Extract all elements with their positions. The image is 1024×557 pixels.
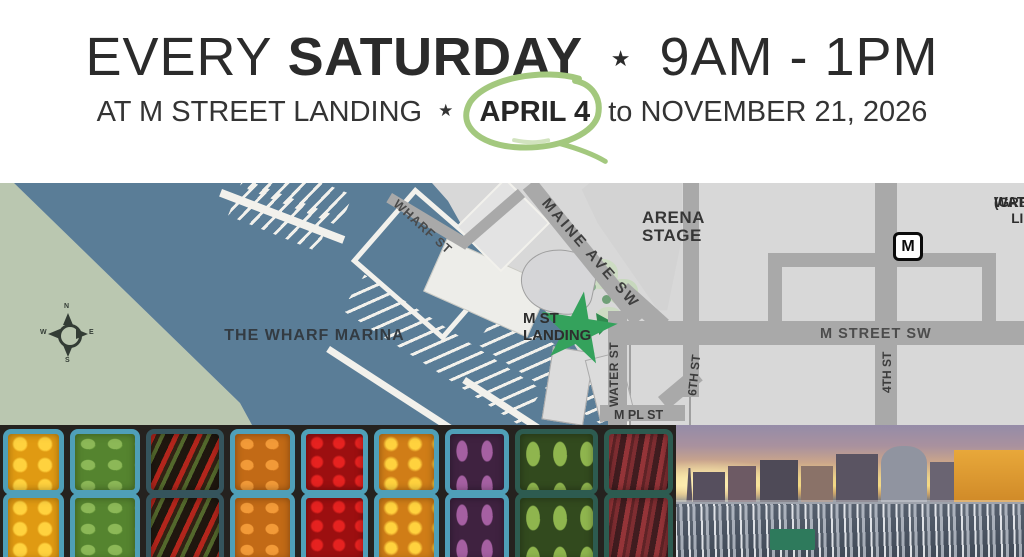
end-date: NOVEMBER 21, 2026 bbox=[640, 96, 927, 128]
arena-stage-line2: STAGE bbox=[642, 227, 702, 245]
compass-e-label: E bbox=[89, 329, 94, 336]
produce-basket bbox=[3, 429, 64, 495]
skyline-building bbox=[760, 460, 798, 502]
farmers-market-flyer: EVERY SATURDAY ★ 9AM - 1PM AT M STREET L… bbox=[0, 0, 1024, 557]
wharf-area-map: N S E W WHARF ST MAINE AVE SW ARENA STAG… bbox=[0, 183, 1024, 425]
headline-every: EVERY bbox=[85, 27, 271, 87]
skyline-building bbox=[801, 466, 832, 502]
produce-basket bbox=[604, 493, 673, 557]
photo-okra bbox=[601, 425, 676, 557]
compass-east-pointer bbox=[76, 329, 88, 339]
compass-n-label: N bbox=[64, 303, 69, 310]
compass-west-pointer bbox=[48, 329, 60, 339]
produce-basket bbox=[515, 429, 598, 495]
photo-orange-tomatoes bbox=[227, 425, 298, 557]
compass-w-label: W bbox=[40, 329, 47, 336]
photo-wharf-skyline bbox=[676, 425, 1024, 557]
m-street-landing-label: M ST LANDING bbox=[468, 311, 578, 328]
compass-south-pointer bbox=[63, 345, 73, 357]
produce-basket bbox=[146, 429, 224, 495]
block-loop-road bbox=[768, 253, 782, 325]
compass-icon: N S E W bbox=[42, 305, 94, 363]
block-loop-road bbox=[768, 253, 996, 267]
produce-basket bbox=[604, 429, 673, 495]
photo-eggplants bbox=[442, 425, 512, 557]
m-place-label: M PL ST bbox=[614, 408, 663, 422]
m-street-road bbox=[612, 321, 1024, 345]
skyline-building bbox=[836, 454, 878, 502]
arena-stage-line1: ARENA bbox=[642, 209, 705, 227]
start-date-circled: APRIL 4 bbox=[469, 98, 600, 127]
landing-line2: LANDING bbox=[523, 328, 591, 345]
star-separator-icon: ★ bbox=[611, 46, 632, 71]
marina-boats bbox=[676, 504, 1024, 557]
golden-glass-building bbox=[954, 450, 1024, 502]
wharf-marina-label: THE WHARF MARINA bbox=[222, 327, 407, 345]
produce-basket bbox=[301, 429, 368, 495]
produce-basket bbox=[445, 429, 509, 495]
water-street-label: WATER ST bbox=[607, 342, 621, 407]
skyline-building bbox=[728, 466, 756, 502]
compass-north-pointer bbox=[63, 313, 73, 325]
metro-m-icon: M bbox=[893, 232, 923, 261]
green-boat-awning bbox=[770, 529, 815, 550]
produce-basket bbox=[146, 493, 224, 557]
produce-basket bbox=[3, 493, 64, 557]
photo-shishito-peppers bbox=[67, 425, 143, 557]
produce-basket bbox=[301, 493, 368, 557]
sixth-street-label: 6TH ST bbox=[685, 354, 703, 397]
photo-yellow-tomatoes bbox=[0, 425, 67, 557]
produce-basket bbox=[445, 493, 509, 557]
photo-strip bbox=[0, 425, 1024, 557]
photo-cherry-tomatoes bbox=[371, 425, 442, 557]
landing-line1: M ST bbox=[523, 311, 559, 328]
arena-stage-label: ARENA STAGE bbox=[586, 209, 698, 227]
produce-basket bbox=[374, 429, 439, 495]
metro-line-name: (GREEN LINE) bbox=[994, 195, 1024, 227]
start-date: APRIL 4 bbox=[479, 96, 590, 128]
flyer-header: EVERY SATURDAY ★ 9AM - 1PM AT M STREET L… bbox=[0, 0, 1024, 183]
curved-glass-building bbox=[881, 446, 926, 502]
skyline-building bbox=[693, 472, 724, 502]
subheadline: AT M STREET LANDING ★ APRIL 4 to NOVEMBE… bbox=[0, 98, 1024, 127]
headline-time: 9AM - 1PM bbox=[659, 27, 938, 87]
sixth-street-road bbox=[683, 183, 699, 335]
fourth-street-label: 4TH ST bbox=[880, 352, 894, 393]
produce-basket bbox=[70, 493, 140, 557]
compass-s-label: S bbox=[65, 357, 70, 364]
m-street-sw-label: M STREET SW bbox=[820, 326, 932, 342]
star-separator-icon: ★ bbox=[438, 101, 453, 120]
produce-basket bbox=[515, 493, 598, 557]
produce-basket bbox=[230, 429, 295, 495]
subheadline-location: AT M STREET LANDING bbox=[97, 96, 423, 128]
produce-basket bbox=[230, 493, 295, 557]
produce-basket bbox=[70, 429, 140, 495]
photo-cucumbers bbox=[512, 425, 601, 557]
block-loop-road bbox=[982, 253, 996, 325]
photo-chili-peppers bbox=[143, 425, 227, 557]
photo-red-tomatoes bbox=[298, 425, 371, 557]
produce-basket bbox=[374, 493, 439, 557]
